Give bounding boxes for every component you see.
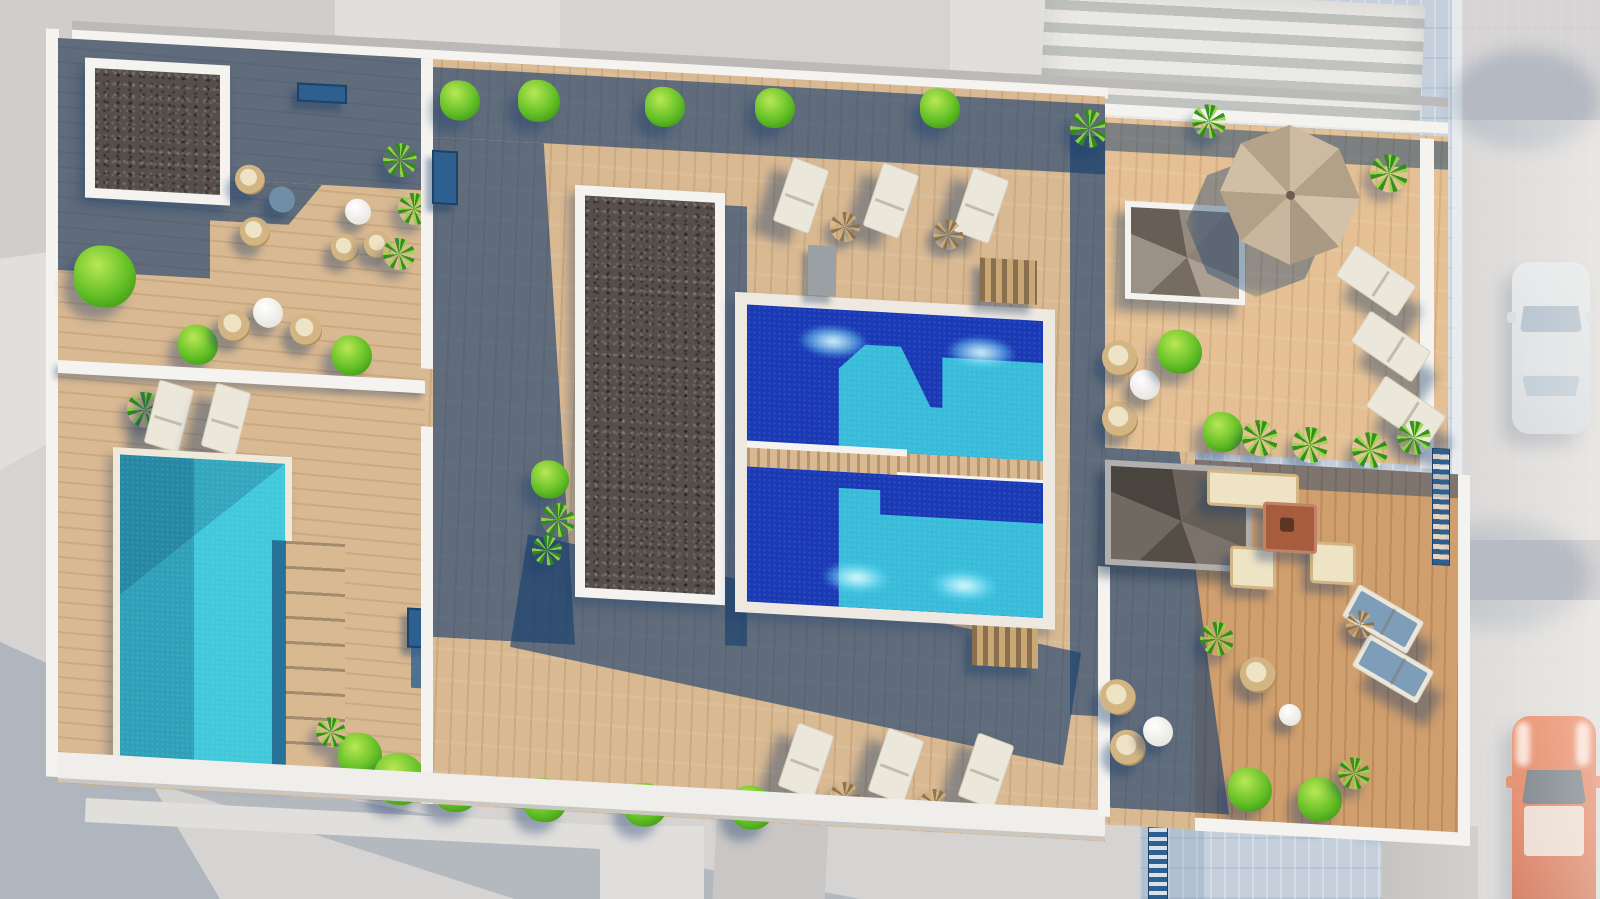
dry-palm-plant [830, 211, 860, 243]
parasol-pole [1286, 191, 1295, 201]
interior-wall [421, 426, 433, 804]
glass-railing [1432, 448, 1450, 566]
fern [531, 459, 569, 499]
fire-table [1263, 501, 1317, 554]
hedge-ball [440, 79, 480, 121]
aerial-architectural-render [0, 0, 1600, 899]
pool-lower [747, 467, 1043, 619]
side-table [1279, 703, 1301, 726]
water-sparkle [120, 454, 285, 774]
deck-steps-upper [980, 258, 1037, 305]
hedge-ball [920, 87, 960, 129]
private-pool-coping [113, 447, 292, 782]
bush [1203, 411, 1243, 453]
gravel-fill [95, 68, 220, 195]
round-table-white [345, 198, 371, 225]
hedge-ball [755, 87, 795, 129]
water-sparkle [747, 305, 1043, 462]
bush [178, 324, 218, 366]
gravel-roof-strip [575, 185, 725, 605]
rooftop-building [58, 38, 1518, 890]
bush [332, 334, 372, 376]
stairs-shadow [272, 540, 286, 769]
hedge-ball [645, 86, 685, 128]
deck-steps-lower [972, 625, 1038, 669]
hedge-ball [518, 79, 560, 123]
pool-upper [747, 305, 1043, 462]
wicker-chair [235, 164, 265, 196]
dry-palm-plant [1346, 610, 1374, 640]
gravel-fill [585, 195, 715, 594]
bench [297, 82, 347, 104]
wall-unit [432, 150, 458, 205]
gravel-roof-square [85, 58, 230, 206]
water-sparkle [747, 467, 1043, 619]
round-table-white [253, 297, 283, 329]
interior-wall [421, 58, 433, 369]
round-table-blue [269, 186, 295, 213]
wicker-chair [331, 233, 359, 263]
pool-equipment-block [808, 245, 836, 297]
outdoor-armchair [1230, 546, 1276, 591]
private-pool-water [120, 454, 285, 774]
fire-table-burner [1280, 517, 1294, 532]
deck-east-wall [1458, 474, 1470, 846]
